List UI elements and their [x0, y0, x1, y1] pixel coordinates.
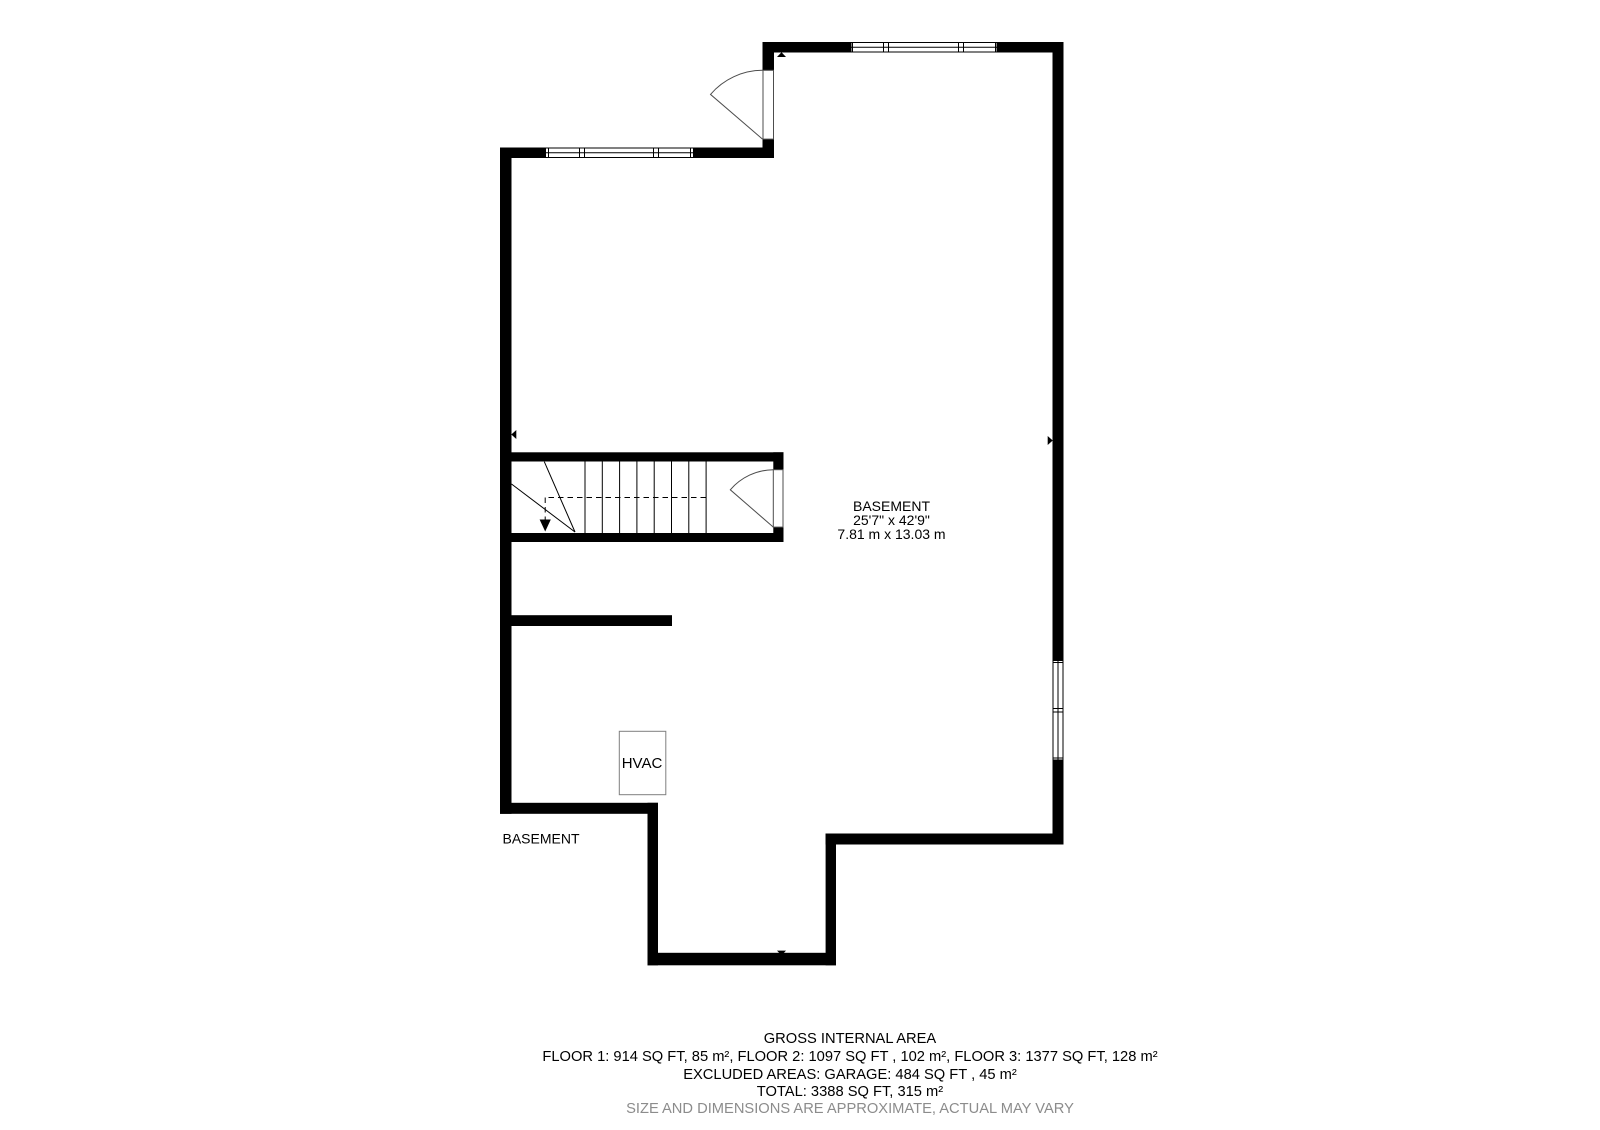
svg-text:HVAC: HVAC [622, 755, 663, 772]
svg-text:7.81 m x 13.03 m: 7.81 m x 13.03 m [837, 526, 945, 542]
svg-text:SIZE AND DIMENSIONS ARE APPROX: SIZE AND DIMENSIONS ARE APPROXIMATE, ACT… [626, 1101, 1074, 1117]
svg-text:BASEMENT: BASEMENT [503, 831, 580, 847]
svg-text:TOTAL: 3388 SQ FT, 315 m²: TOTAL: 3388 SQ FT, 315 m² [757, 1084, 943, 1100]
svg-text:FLOOR 1: 914 SQ FT, 85 m², FLO: FLOOR 1: 914 SQ FT, 85 m², FLOOR 2: 1097… [542, 1049, 1157, 1065]
svg-text:GROSS INTERNAL AREA: GROSS INTERNAL AREA [764, 1031, 937, 1047]
svg-text:EXCLUDED AREAS: GARAGE: 484 SQ: EXCLUDED AREAS: GARAGE: 484 SQ FT , 45 m… [683, 1067, 1017, 1083]
